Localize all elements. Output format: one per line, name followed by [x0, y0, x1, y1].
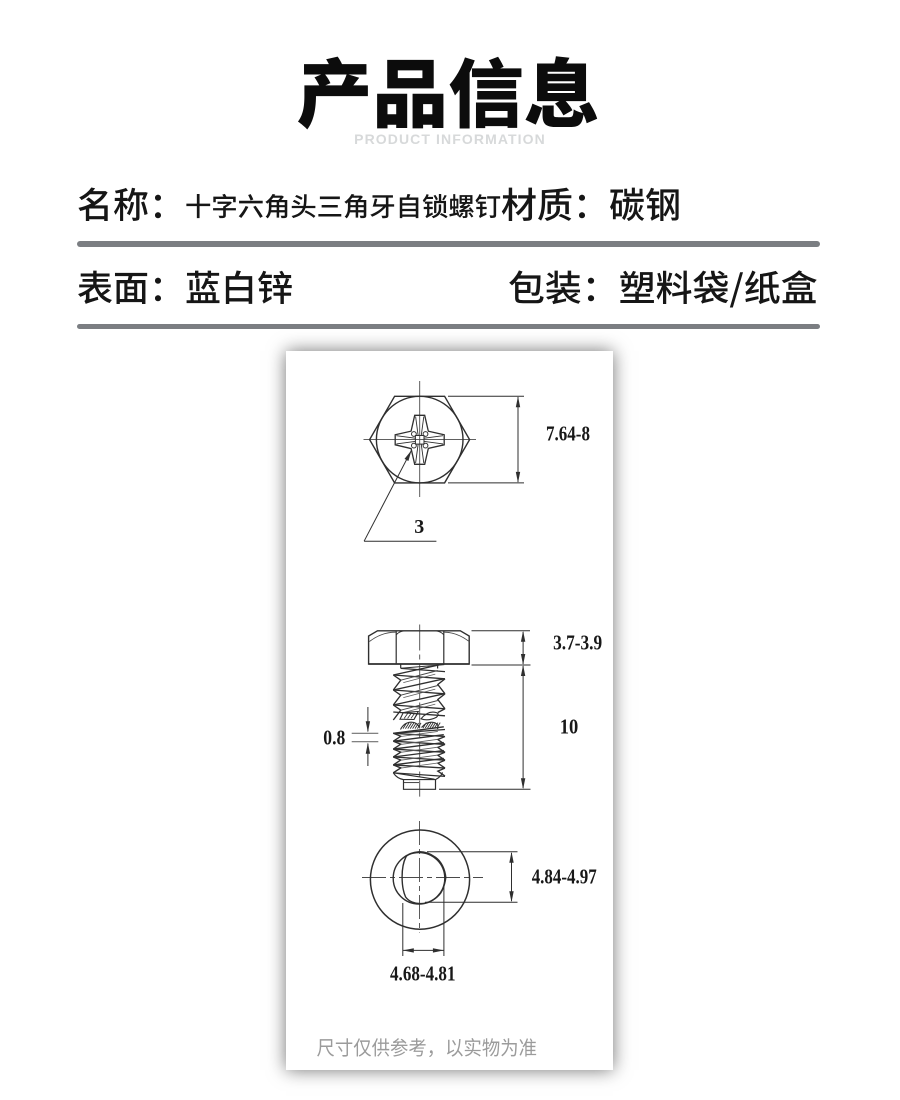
svg-text:10: 10: [560, 715, 579, 739]
svg-text:3: 3: [414, 516, 424, 538]
svg-text:4.84-4.97: 4.84-4.97: [532, 865, 597, 889]
svg-text:7.64-8: 7.64-8: [546, 422, 590, 446]
svg-text:0.8: 0.8: [323, 726, 345, 750]
svg-text:3.7-3.9: 3.7-3.9: [553, 630, 602, 654]
svg-text:4.68-4.81: 4.68-4.81: [390, 962, 456, 986]
